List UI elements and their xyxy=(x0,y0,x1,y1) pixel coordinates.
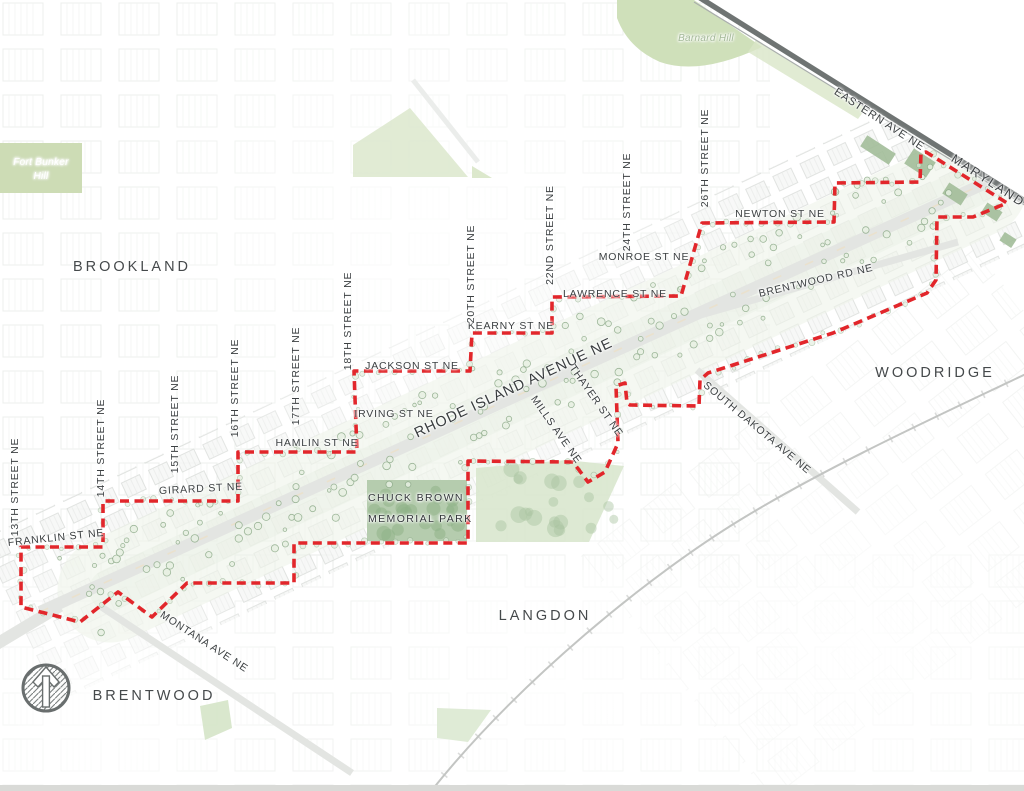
north-arrow-compass-icon xyxy=(23,665,69,711)
map-artwork xyxy=(0,0,1024,791)
corridor-map: BROOKLANDWOODRIDGELANGDONBRENTWOODFort B… xyxy=(0,0,1024,791)
